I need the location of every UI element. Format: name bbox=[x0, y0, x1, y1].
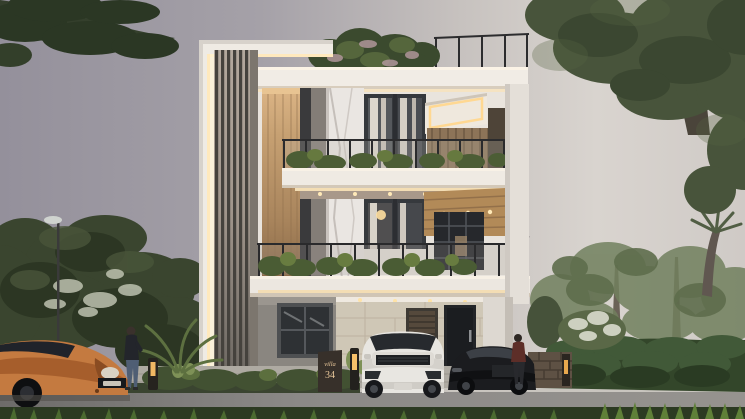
svg-text:villa: villa bbox=[324, 361, 336, 368]
svg-text:34: 34 bbox=[325, 370, 335, 381]
